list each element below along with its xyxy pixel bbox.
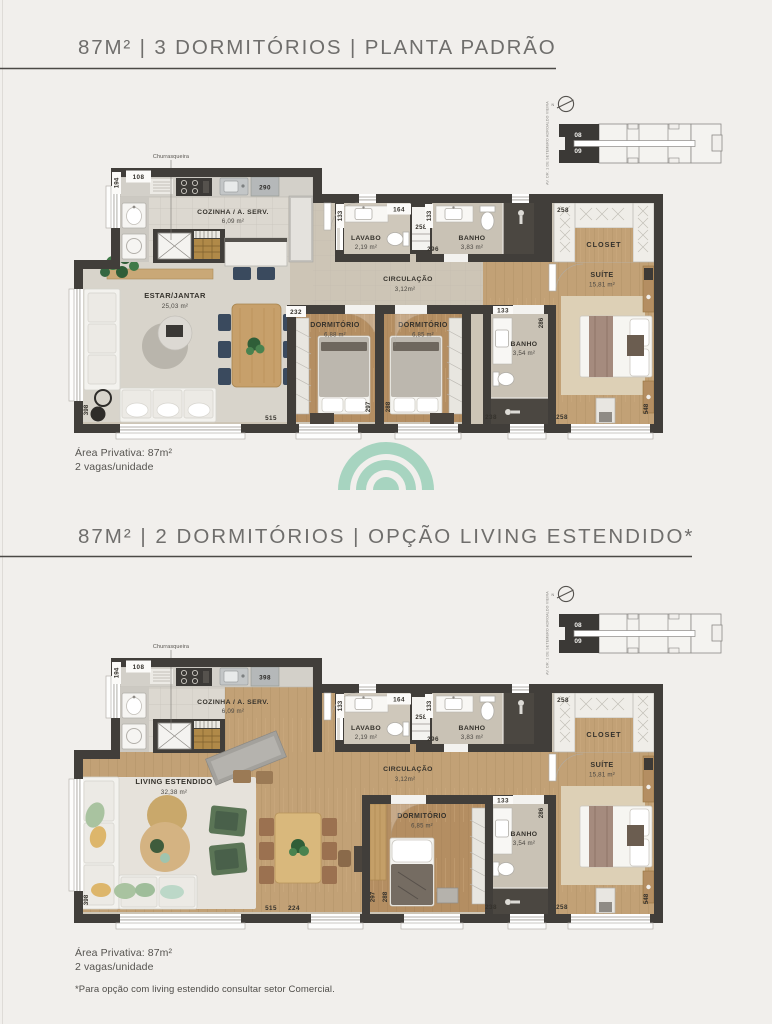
svg-text:COZINHA / A. SERV.: COZINHA / A. SERV.: [197, 209, 269, 216]
svg-text:09: 09: [574, 148, 582, 155]
svg-text:LIVING ESTENDIDO: LIVING ESTENDIDO: [135, 777, 212, 786]
svg-text:290: 290: [259, 185, 271, 192]
svg-text:2,19 m²: 2,19 m²: [355, 734, 377, 741]
svg-text:258: 258: [556, 904, 568, 911]
svg-text:194: 194: [114, 667, 121, 678]
svg-text:288: 288: [382, 891, 389, 902]
svg-text:133: 133: [337, 210, 344, 221]
svg-text:258: 258: [557, 697, 569, 704]
svg-text:133: 133: [337, 700, 344, 711]
svg-text:133: 133: [426, 700, 433, 711]
svg-text:SUÍTE: SUÍTE: [590, 760, 613, 769]
svg-text:6,09 m²: 6,09 m²: [222, 708, 244, 715]
svg-text:CIRCULAÇÃO: CIRCULAÇÃO: [383, 764, 433, 773]
svg-text:6,88 m²: 6,88 m²: [324, 333, 346, 339]
svg-text:Churrasqueira: Churrasqueira: [153, 154, 190, 160]
svg-text:398: 398: [83, 404, 90, 415]
svg-text:3,54 m²: 3,54 m²: [513, 840, 535, 847]
svg-text:25,03 m²: 25,03 m²: [162, 303, 188, 310]
svg-text:LAVABO: LAVABO: [351, 725, 381, 732]
svg-text:548: 548: [643, 893, 650, 904]
svg-text:2 vagas/unidade: 2 vagas/unidade: [75, 961, 154, 973]
svg-text:3,54 m²: 3,54 m²: [513, 350, 535, 357]
svg-text:15,81 m²: 15,81 m²: [589, 282, 615, 289]
svg-text:164: 164: [393, 206, 405, 213]
svg-text:2,19 m²: 2,19 m²: [355, 244, 377, 251]
svg-text:288: 288: [385, 401, 392, 412]
svg-text:SUÍTE: SUÍTE: [590, 270, 613, 279]
svg-text:09: 09: [574, 638, 582, 645]
svg-text:108: 108: [133, 664, 145, 671]
svg-text:258: 258: [556, 414, 568, 421]
svg-text:238: 238: [485, 904, 497, 911]
svg-text:87M² | 3 DORMITÓRIOS | PLANTA: 87M² | 3 DORMITÓRIOS | PLANTA PADRÃO: [78, 36, 557, 59]
svg-text:194: 194: [114, 177, 121, 188]
svg-text:297: 297: [370, 891, 377, 902]
svg-text:CIRCULAÇÃO: CIRCULAÇÃO: [383, 274, 433, 283]
svg-text:*Para opção com living estendi: *Para opção com living estendido consult…: [75, 984, 335, 995]
svg-text:398: 398: [83, 894, 90, 905]
svg-text:6,09 m²: 6,09 m²: [222, 218, 244, 225]
svg-text:COZINHA / A. SERV.: COZINHA / A. SERV.: [197, 699, 269, 706]
svg-text:3,83 m²: 3,83 m²: [461, 734, 483, 741]
svg-text:3,12m²: 3,12m²: [395, 286, 415, 293]
svg-text:164: 164: [393, 696, 405, 703]
svg-text:224: 224: [288, 905, 300, 912]
svg-text:DORMITÓRIO: DORMITÓRIO: [310, 320, 360, 329]
svg-text:286: 286: [538, 317, 545, 328]
svg-text:Área Privativa: 87m²: Área Privativa: 87m²: [75, 946, 173, 959]
svg-text:ESTAR/JANTAR: ESTAR/JANTAR: [144, 291, 206, 300]
svg-text:87M² | 2 DORMITÓRIOS | OPÇÃO L: 87M² | 2 DORMITÓRIOS | OPÇÃO LIVING ESTE…: [78, 525, 694, 548]
svg-text:108: 108: [133, 174, 145, 181]
svg-text:CLOSET: CLOSET: [586, 730, 621, 739]
svg-text:548: 548: [643, 403, 650, 414]
svg-text:515: 515: [265, 905, 277, 912]
svg-text:AV. DR. 1 DE SETEMBRO ADROALDO: AV. DR. 1 DE SETEMBRO ADROALDO VIEIRA: [546, 591, 550, 675]
svg-text:286: 286: [538, 807, 545, 818]
svg-text:515: 515: [265, 415, 277, 422]
svg-text:2 vagas/unidade: 2 vagas/unidade: [75, 461, 154, 473]
svg-text:238: 238: [485, 414, 497, 421]
svg-text:6,85 m²: 6,85 m²: [411, 824, 433, 830]
svg-text:133: 133: [497, 797, 509, 804]
svg-text:Área Privativa: 87m²: Área Privativa: 87m²: [75, 446, 173, 459]
svg-text:CLOSET: CLOSET: [586, 240, 621, 249]
svg-text:15,81 m²: 15,81 m²: [589, 772, 615, 779]
svg-text:232: 232: [290, 309, 302, 316]
svg-text:BANHO: BANHO: [511, 831, 538, 838]
svg-text:398: 398: [259, 675, 271, 682]
svg-text:296: 296: [427, 736, 439, 743]
svg-text:3,12m²: 3,12m²: [395, 776, 415, 783]
svg-text:6,85 m²: 6,85 m²: [412, 333, 434, 339]
svg-text:BANHO: BANHO: [459, 235, 486, 242]
svg-text:297: 297: [365, 401, 372, 412]
svg-text:258: 258: [557, 207, 569, 214]
svg-text:133: 133: [426, 210, 433, 221]
svg-text:Churrasqueira: Churrasqueira: [153, 644, 190, 650]
svg-text:08: 08: [574, 622, 582, 629]
svg-text:AV. DR. 1 DE SETEMBRO ADROALDO: AV. DR. 1 DE SETEMBRO ADROALDO VIEIRA: [546, 101, 550, 185]
svg-text:DORMITÓRIO: DORMITÓRIO: [397, 811, 447, 820]
svg-text:BANHO: BANHO: [511, 341, 538, 348]
svg-text:32,38 m²: 32,38 m²: [161, 789, 187, 796]
svg-text:LAVABO: LAVABO: [351, 235, 381, 242]
svg-text:08: 08: [574, 132, 582, 139]
svg-text:3,83 m²: 3,83 m²: [461, 244, 483, 251]
svg-text:296: 296: [427, 246, 439, 253]
svg-text:133: 133: [497, 307, 509, 314]
svg-text:BANHO: BANHO: [459, 725, 486, 732]
